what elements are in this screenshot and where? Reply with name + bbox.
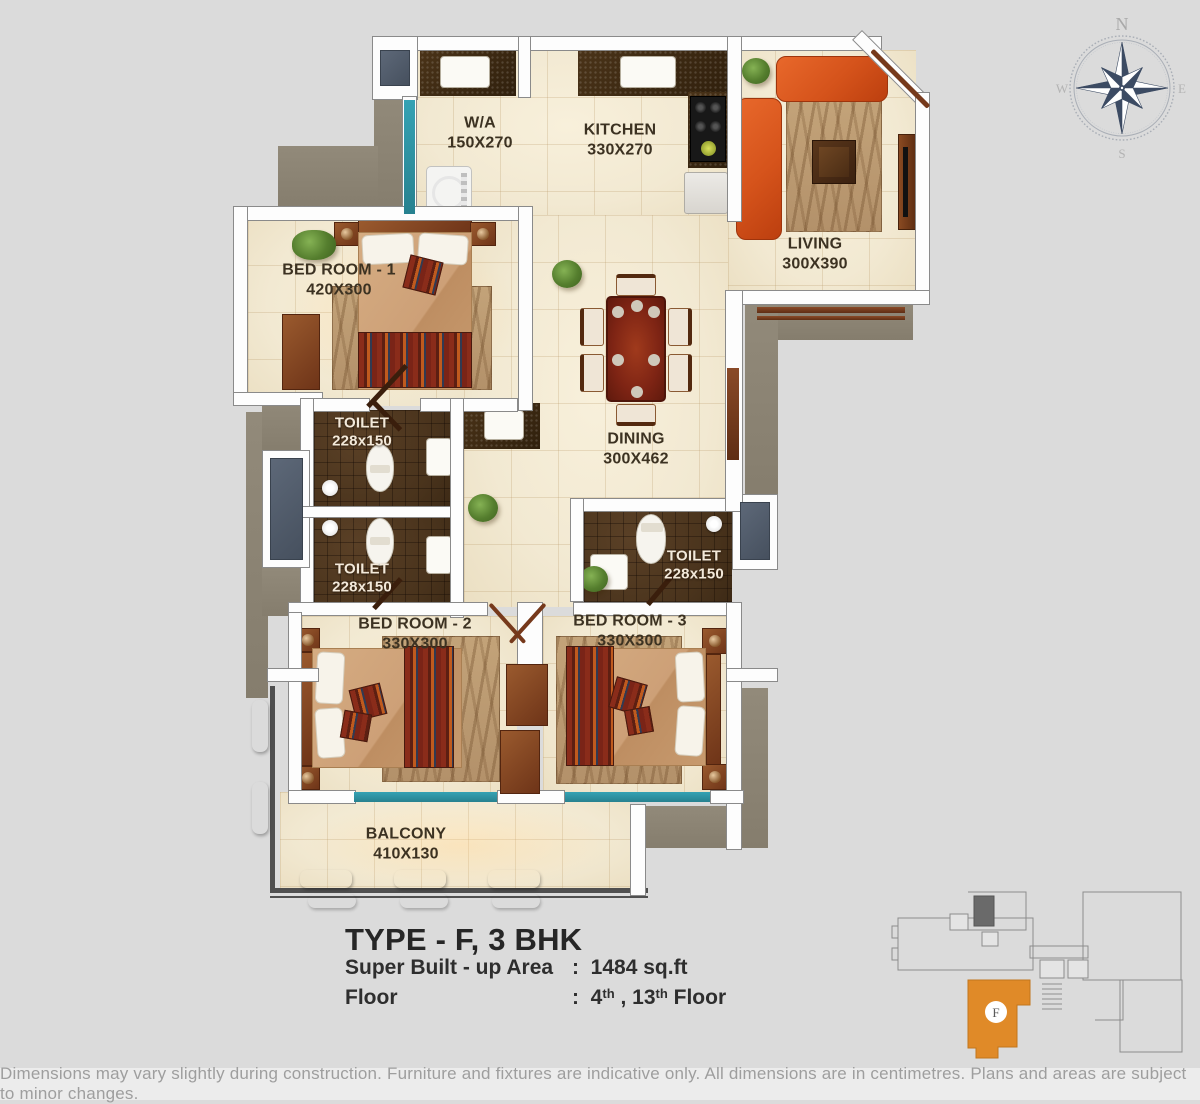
wall bbox=[518, 206, 533, 411]
wall bbox=[726, 668, 778, 682]
plate bbox=[648, 306, 660, 318]
room-label-dining: DINING300X462 bbox=[603, 429, 668, 468]
utility-sink bbox=[440, 56, 490, 88]
balcony-railing bbox=[270, 888, 648, 893]
wc-toilet bbox=[636, 514, 666, 564]
plant bbox=[742, 58, 770, 84]
plan-title: TYPE - F, 3 BHK bbox=[345, 922, 582, 958]
wall bbox=[300, 506, 464, 518]
wardrobe bbox=[282, 314, 320, 390]
hedge bbox=[252, 782, 268, 834]
wash-basin bbox=[484, 410, 524, 440]
compass-south: S bbox=[1118, 146, 1125, 161]
dining-chair bbox=[616, 404, 656, 426]
key-plan-unit-label: F bbox=[992, 1005, 999, 1020]
hedge bbox=[308, 894, 356, 908]
bedside-table bbox=[470, 222, 496, 246]
hedge bbox=[252, 700, 268, 752]
bedside-table bbox=[702, 764, 728, 790]
wardrobe bbox=[500, 730, 540, 794]
room-dims: 330X300 bbox=[382, 635, 447, 652]
burner bbox=[710, 121, 721, 132]
hedge bbox=[300, 870, 352, 888]
dining-chair bbox=[580, 354, 604, 392]
dining-chair bbox=[668, 308, 692, 346]
room-dims: 228x150 bbox=[332, 579, 392, 596]
wc-seat bbox=[641, 523, 663, 532]
lamp bbox=[709, 771, 721, 783]
shaft-window bbox=[740, 502, 770, 560]
room-label-bedroom3: BED ROOM - 3330X300 bbox=[573, 611, 687, 650]
plate bbox=[631, 300, 643, 312]
bed1-runner bbox=[358, 332, 472, 388]
wall bbox=[233, 206, 533, 221]
coffee-table bbox=[812, 140, 856, 184]
room-dims: 228x150 bbox=[332, 433, 392, 450]
area-row: Super Built - up Area : 1484 sq.ft bbox=[345, 956, 825, 980]
wall bbox=[420, 398, 518, 412]
door-frame bbox=[727, 368, 739, 460]
stove-icon bbox=[690, 96, 726, 162]
toilet-basin bbox=[426, 438, 452, 476]
plant bbox=[552, 260, 582, 288]
shower-icon bbox=[322, 480, 338, 496]
window bbox=[565, 792, 710, 802]
shower-icon bbox=[322, 520, 338, 536]
wall bbox=[570, 498, 584, 602]
burner bbox=[710, 102, 721, 113]
toilet-basin bbox=[426, 536, 452, 574]
tv-screen bbox=[903, 147, 908, 217]
key-plan: F bbox=[890, 888, 1200, 1066]
plate bbox=[648, 354, 660, 366]
area-value: : 1484 sq.ft bbox=[572, 956, 688, 980]
room-label-wa: W/A150X270 bbox=[447, 113, 512, 152]
wall bbox=[728, 290, 930, 305]
exterior-band bbox=[278, 146, 378, 208]
burner bbox=[695, 102, 706, 113]
exterior-band bbox=[745, 302, 778, 502]
compass-north: N bbox=[1116, 14, 1129, 34]
pillow bbox=[315, 651, 346, 704]
room-dims: 300X390 bbox=[782, 255, 847, 272]
wall bbox=[233, 206, 248, 406]
fridge bbox=[684, 172, 728, 214]
floorplan-page: { "plan": { "rooms": [ {"id":"wa","name"… bbox=[0, 0, 1200, 1100]
exterior-band bbox=[742, 688, 768, 848]
room-dims: 420X300 bbox=[306, 281, 371, 298]
room-dims: 228x150 bbox=[664, 566, 724, 583]
plate bbox=[612, 306, 624, 318]
ledge-rail bbox=[757, 307, 905, 313]
dining-chair bbox=[616, 274, 656, 296]
dining-table bbox=[606, 296, 666, 402]
room-label-toilet1: TOILET228x150 bbox=[332, 415, 392, 452]
lamp bbox=[341, 228, 353, 240]
tv-unit bbox=[898, 134, 916, 230]
dining-chair bbox=[580, 308, 604, 346]
floor-row: Floor : 4th , 13th Floor bbox=[345, 986, 825, 1010]
balcony-railing bbox=[270, 686, 275, 892]
wall bbox=[372, 36, 882, 51]
room-dims: 330X270 bbox=[587, 141, 652, 158]
compass-east: E bbox=[1178, 81, 1186, 96]
compass-rose-icon: N S W E bbox=[1050, 8, 1195, 168]
lamp bbox=[709, 635, 721, 647]
disclaimer-text: Dimensions may vary slightly during cons… bbox=[0, 1064, 1200, 1104]
pillow bbox=[675, 651, 706, 702]
room-label-kitchen: KITCHEN330X270 bbox=[584, 120, 657, 159]
ledge-rail bbox=[757, 316, 905, 320]
wall bbox=[727, 36, 742, 222]
room-label-toilet3: TOILET228x150 bbox=[664, 548, 724, 585]
shaft-window bbox=[270, 458, 303, 560]
wall bbox=[630, 804, 646, 896]
plant bbox=[468, 494, 498, 522]
bedside-table bbox=[334, 222, 360, 246]
room-label-living: LIVING300X390 bbox=[782, 234, 847, 273]
hedge bbox=[488, 870, 540, 888]
hedge bbox=[400, 894, 448, 908]
wc-seat bbox=[370, 537, 390, 545]
wall bbox=[570, 498, 732, 512]
bed2-runner bbox=[404, 646, 454, 768]
window bbox=[404, 100, 415, 214]
sofa-top bbox=[776, 56, 888, 102]
bed3-runner bbox=[566, 646, 614, 766]
wall bbox=[267, 668, 319, 682]
wc-seat bbox=[370, 465, 390, 473]
room-dims: 330X300 bbox=[597, 632, 662, 649]
lamp bbox=[302, 772, 314, 784]
wall bbox=[726, 602, 742, 850]
accent-pillow bbox=[624, 706, 654, 736]
shaft-window bbox=[380, 50, 410, 86]
room-dims: 410X130 bbox=[373, 845, 438, 862]
plant bbox=[580, 566, 608, 592]
wall bbox=[288, 612, 302, 800]
plate bbox=[612, 354, 624, 366]
window bbox=[354, 792, 497, 802]
wall bbox=[450, 398, 464, 618]
room-dims: 150X270 bbox=[447, 134, 512, 151]
pillow bbox=[674, 705, 705, 757]
washer-controls bbox=[461, 173, 467, 209]
lamp bbox=[302, 634, 314, 646]
table-top bbox=[819, 147, 849, 177]
wall bbox=[288, 790, 356, 804]
wall bbox=[915, 92, 930, 302]
wall bbox=[518, 36, 531, 98]
floor-label: Floor bbox=[345, 986, 398, 1009]
dish bbox=[701, 141, 716, 156]
room-label-bedroom1: BED ROOM - 1420X300 bbox=[282, 260, 396, 299]
wardrobe bbox=[506, 664, 548, 726]
hedge bbox=[492, 894, 540, 908]
room-dims: 300X462 bbox=[603, 450, 668, 467]
sofa-left bbox=[736, 98, 782, 240]
shower-icon bbox=[706, 516, 722, 532]
room-label-balcony: BALCONY410X130 bbox=[366, 824, 447, 863]
area-label: Super Built - up Area bbox=[345, 956, 553, 979]
wc-toilet bbox=[366, 518, 394, 566]
plate bbox=[631, 386, 643, 398]
disclaimer-bar: Dimensions may vary slightly during cons… bbox=[0, 1068, 1200, 1100]
burner bbox=[695, 121, 706, 132]
kitchen-sink bbox=[620, 56, 676, 88]
compass-west: W bbox=[1056, 81, 1069, 96]
hedge bbox=[394, 870, 446, 888]
floor-value: : 4th , 13th Floor bbox=[572, 986, 726, 1010]
bed3-headboard bbox=[706, 654, 721, 766]
dining-chair bbox=[668, 354, 692, 392]
wall bbox=[710, 790, 744, 804]
accent-pillow bbox=[340, 710, 372, 742]
lamp bbox=[477, 228, 489, 240]
plant bbox=[292, 230, 336, 260]
room-label-toilet2: TOILET228x150 bbox=[332, 561, 392, 598]
room-label-bedroom2: BED ROOM - 2330X300 bbox=[358, 614, 472, 653]
